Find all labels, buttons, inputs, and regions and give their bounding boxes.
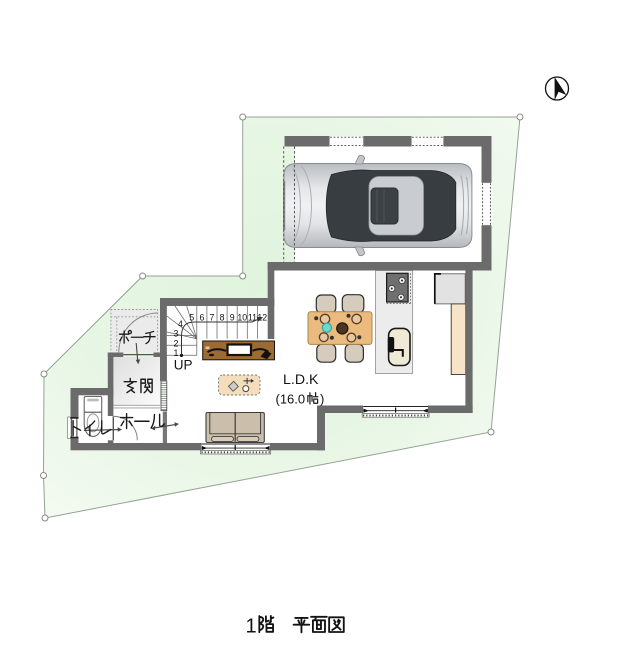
svg-text:11: 11 [248, 313, 257, 323]
svg-text:UP: UP [174, 358, 193, 373]
svg-text:1: 1 [246, 616, 257, 638]
svg-text:9: 9 [230, 313, 235, 323]
svg-text:L.D.K: L.D.K [283, 372, 319, 388]
svg-text:(16.0: (16.0 [276, 392, 306, 407]
svg-text:2: 2 [174, 338, 179, 348]
svg-text:8: 8 [220, 313, 225, 323]
svg-text:10: 10 [237, 313, 247, 323]
svg-text:3: 3 [174, 329, 179, 339]
svg-text:7: 7 [210, 313, 215, 323]
svg-text:6: 6 [199, 313, 204, 323]
svg-text:5: 5 [189, 313, 194, 323]
svg-text:4: 4 [178, 319, 183, 329]
svg-text:): ) [320, 392, 324, 407]
